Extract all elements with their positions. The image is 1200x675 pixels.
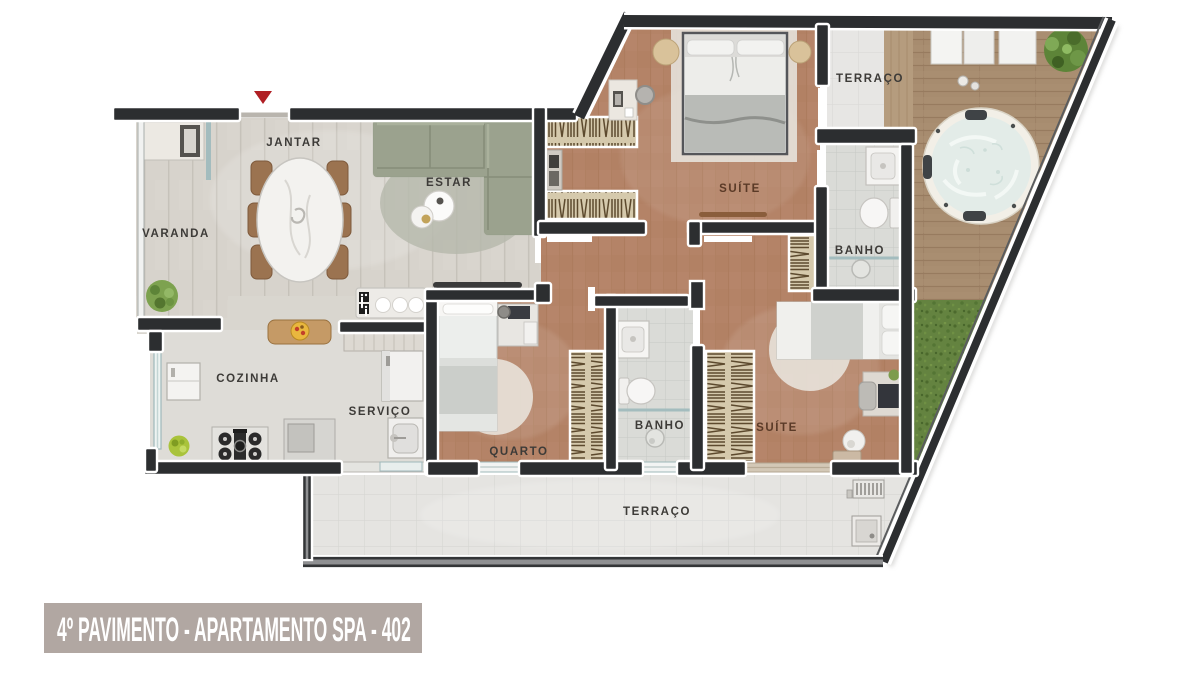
svg-text:TERRAÇO: TERRAÇO (836, 73, 904, 85)
svg-text:4º PAVIMENTO - APARTAMENTO SPA: 4º PAVIMENTO - APARTAMENTO SPA - 402 (57, 611, 411, 649)
svg-text:SUÍTE: SUÍTE (756, 421, 798, 434)
svg-text:JANTAR: JANTAR (266, 137, 321, 149)
svg-text:QUARTO: QUARTO (489, 446, 548, 458)
svg-text:TERRAÇO: TERRAÇO (623, 506, 691, 518)
svg-text:SERVIÇO: SERVIÇO (349, 406, 412, 418)
svg-text:VARANDA: VARANDA (142, 228, 210, 240)
svg-text:ESTAR: ESTAR (426, 177, 472, 189)
svg-text:BANHO: BANHO (835, 245, 885, 257)
svg-text:BANHO: BANHO (635, 420, 685, 432)
svg-text:SUÍTE: SUÍTE (719, 182, 761, 195)
svg-text:COZINHA: COZINHA (216, 373, 280, 385)
